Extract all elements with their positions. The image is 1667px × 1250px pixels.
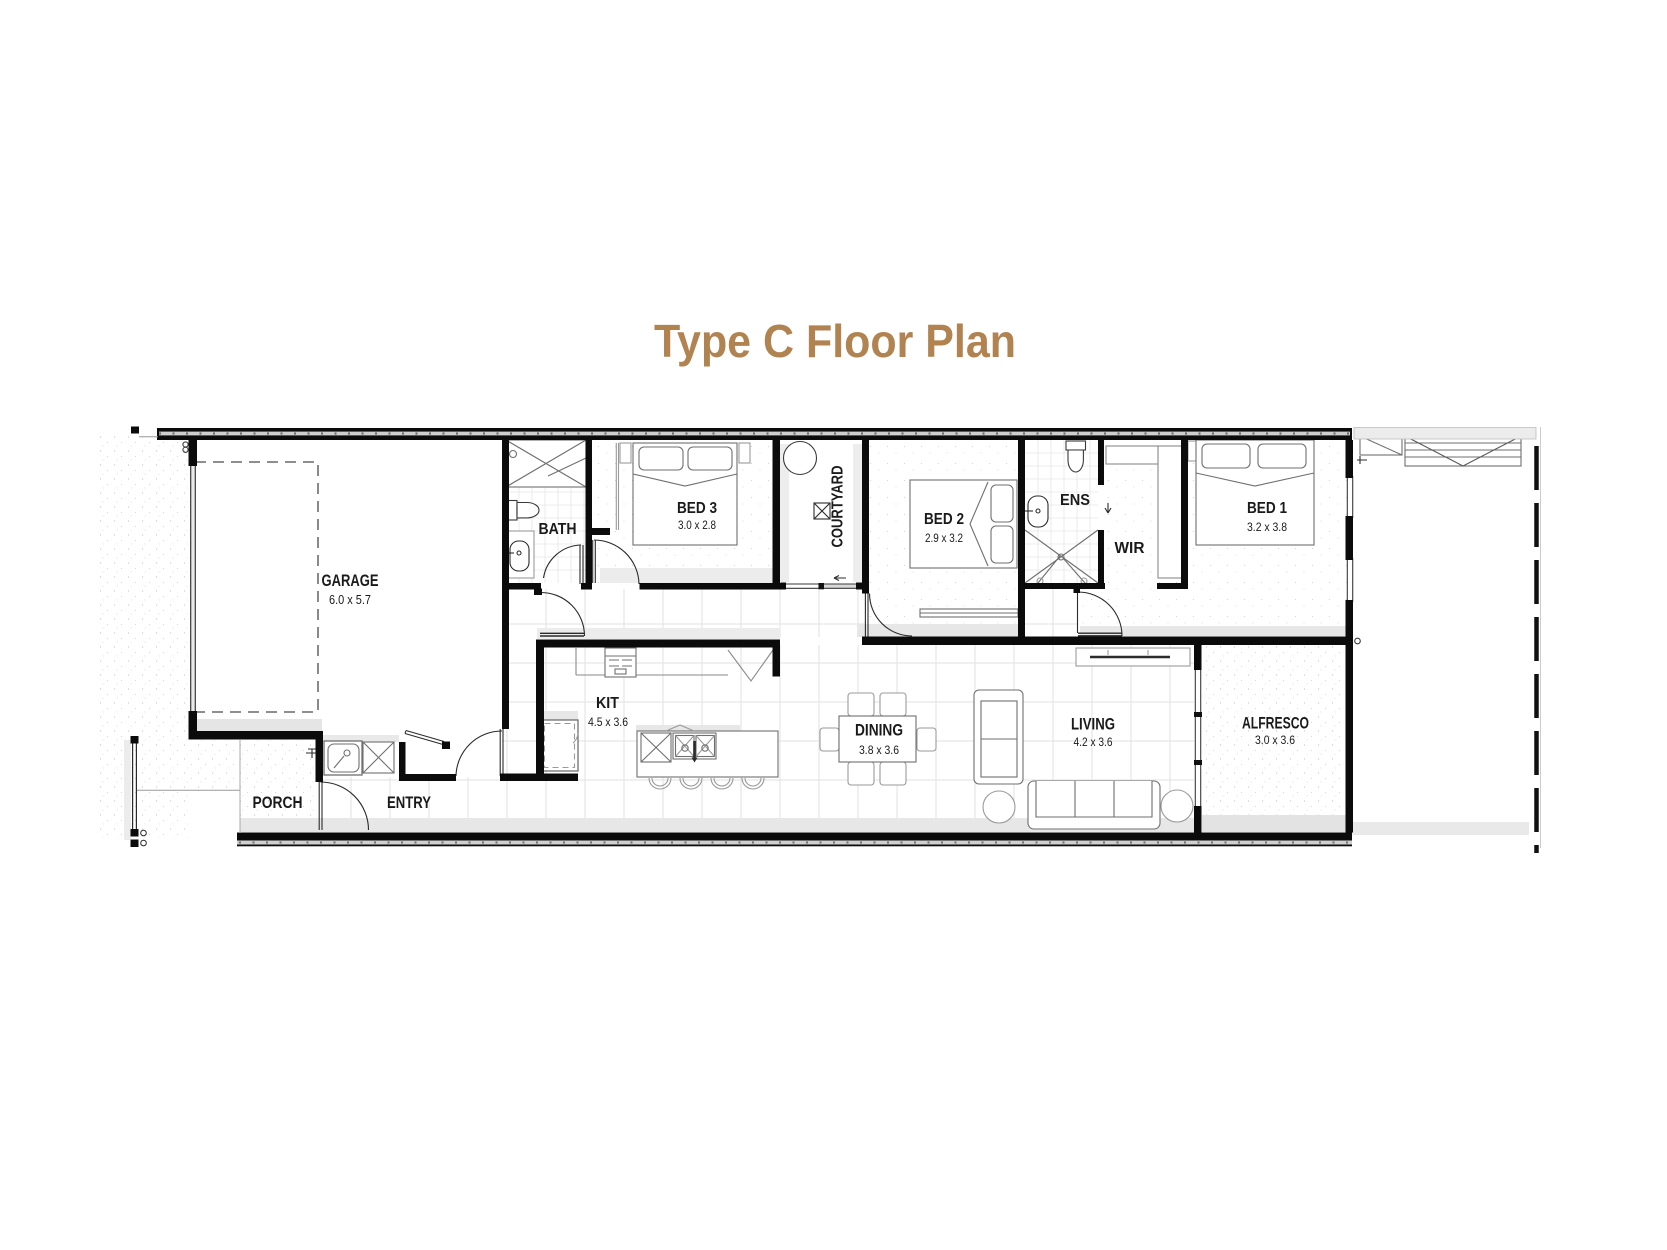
svg-text:KIT: KIT	[596, 695, 619, 712]
svg-text:BED 1: BED 1	[1247, 500, 1287, 517]
svg-text:BED 2: BED 2	[924, 511, 964, 528]
svg-text:4.5 x 3.6: 4.5 x 3.6	[588, 715, 628, 729]
svg-text:PORCH: PORCH	[253, 793, 303, 812]
svg-text:2.9 x 3.2: 2.9 x 3.2	[925, 531, 963, 545]
svg-text:4.2 x 3.6: 4.2 x 3.6	[1074, 735, 1113, 749]
svg-text:GARAGE: GARAGE	[322, 571, 379, 590]
svg-text:ENTRY: ENTRY	[387, 793, 431, 812]
svg-text:WIR: WIR	[1115, 540, 1145, 557]
svg-text:3.8 x 3.6: 3.8 x 3.6	[859, 743, 899, 757]
svg-text:Type C Floor Plan: Type C Floor Plan	[654, 315, 1016, 367]
svg-text:ALFRESCO: ALFRESCO	[1242, 715, 1309, 733]
svg-text:BED 3: BED 3	[677, 500, 717, 517]
svg-text:DINING: DINING	[855, 722, 903, 740]
svg-text:3.0 x 3.6: 3.0 x 3.6	[1255, 733, 1295, 747]
svg-text:3.0 x 2.8: 3.0 x 2.8	[678, 518, 716, 532]
svg-text:COURTYARD: COURTYARD	[830, 466, 847, 548]
svg-text:LIVING: LIVING	[1071, 716, 1115, 734]
svg-text:ENS: ENS	[1060, 492, 1090, 509]
svg-text:3.2 x 3.8: 3.2 x 3.8	[1247, 520, 1287, 534]
svg-text:BATH: BATH	[539, 521, 577, 538]
svg-text:6.0 x 5.7: 6.0 x 5.7	[329, 593, 371, 607]
